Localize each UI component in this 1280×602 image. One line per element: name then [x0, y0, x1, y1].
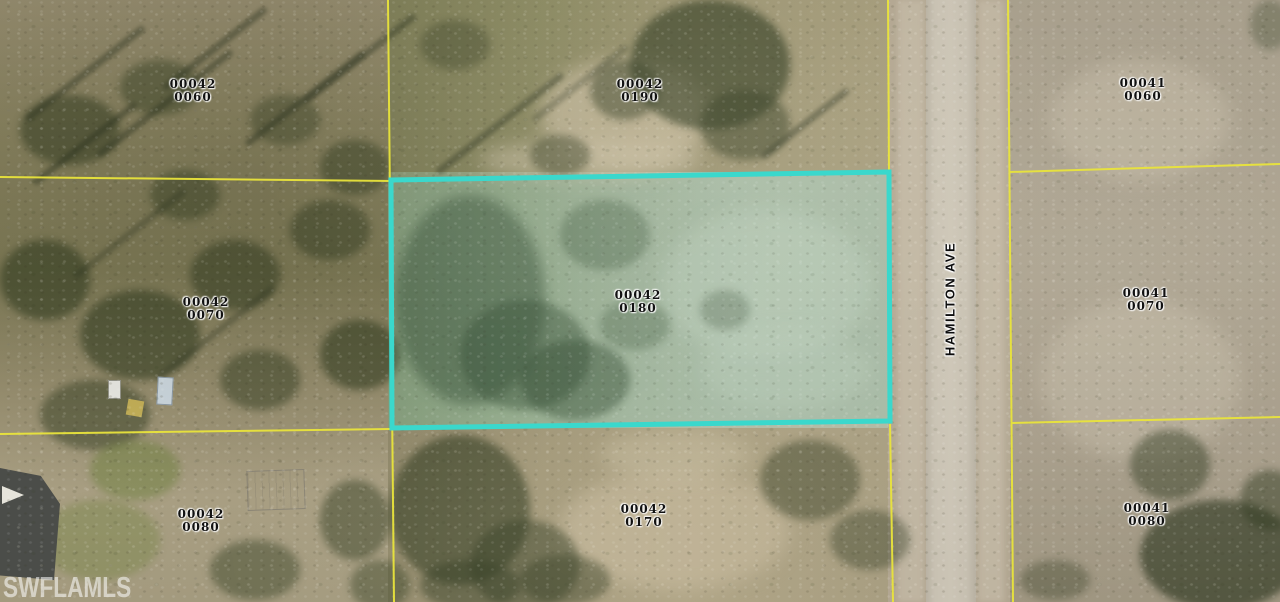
boundary-line-road-west-lower	[890, 424, 893, 602]
aerial-parcel-map: 00042 0060 00042 0190 00041 0060 00042 0…	[0, 0, 1280, 602]
parcel-label-00041-0070: 00041 0070	[1106, 287, 1186, 313]
parcel-label-00042-0180: 00042 0180	[598, 289, 678, 315]
parcel-id-line2: 0060	[1103, 90, 1183, 103]
parcel-label-00042-0060: 00042 0060	[153, 78, 233, 104]
street-label-hamilton-ave: HAMILTON AVE	[943, 242, 958, 356]
parcel-label-00042-0070: 00042 0070	[166, 296, 246, 322]
parcel-label-00041-0060: 00041 0060	[1103, 77, 1183, 103]
boundary-line-right-upper	[1010, 164, 1280, 172]
boundary-line-road-east	[1008, 0, 1013, 602]
boundary-line-right-lower	[1012, 417, 1280, 423]
parcel-id-line2: 0060	[153, 91, 233, 104]
parcel-label-00042-0170: 00042 0170	[604, 503, 684, 529]
parcel-label-00041-0080: 00041 0080	[1107, 502, 1187, 528]
mls-watermark: SWFLAMLS	[3, 572, 131, 602]
parcel-id-line2: 0080	[161, 521, 241, 534]
parcel-id-line2: 0070	[166, 309, 246, 322]
parcel-id-line2: 0070	[1106, 300, 1186, 313]
parcel-label-00042-0190: 00042 0190	[600, 78, 680, 104]
parcel-label-00042-0080: 00042 0080	[161, 508, 241, 534]
parcel-id-line2: 0190	[600, 91, 680, 104]
parcel-id-line2: 0170	[604, 516, 684, 529]
boundary-line-left-lower	[0, 429, 391, 434]
boundary-line-left-upper	[0, 177, 390, 181]
parcel-id-line2: 0180	[598, 302, 678, 315]
boundary-line-road-west-upper	[888, 0, 889, 174]
parcel-id-line2: 0080	[1107, 515, 1187, 528]
